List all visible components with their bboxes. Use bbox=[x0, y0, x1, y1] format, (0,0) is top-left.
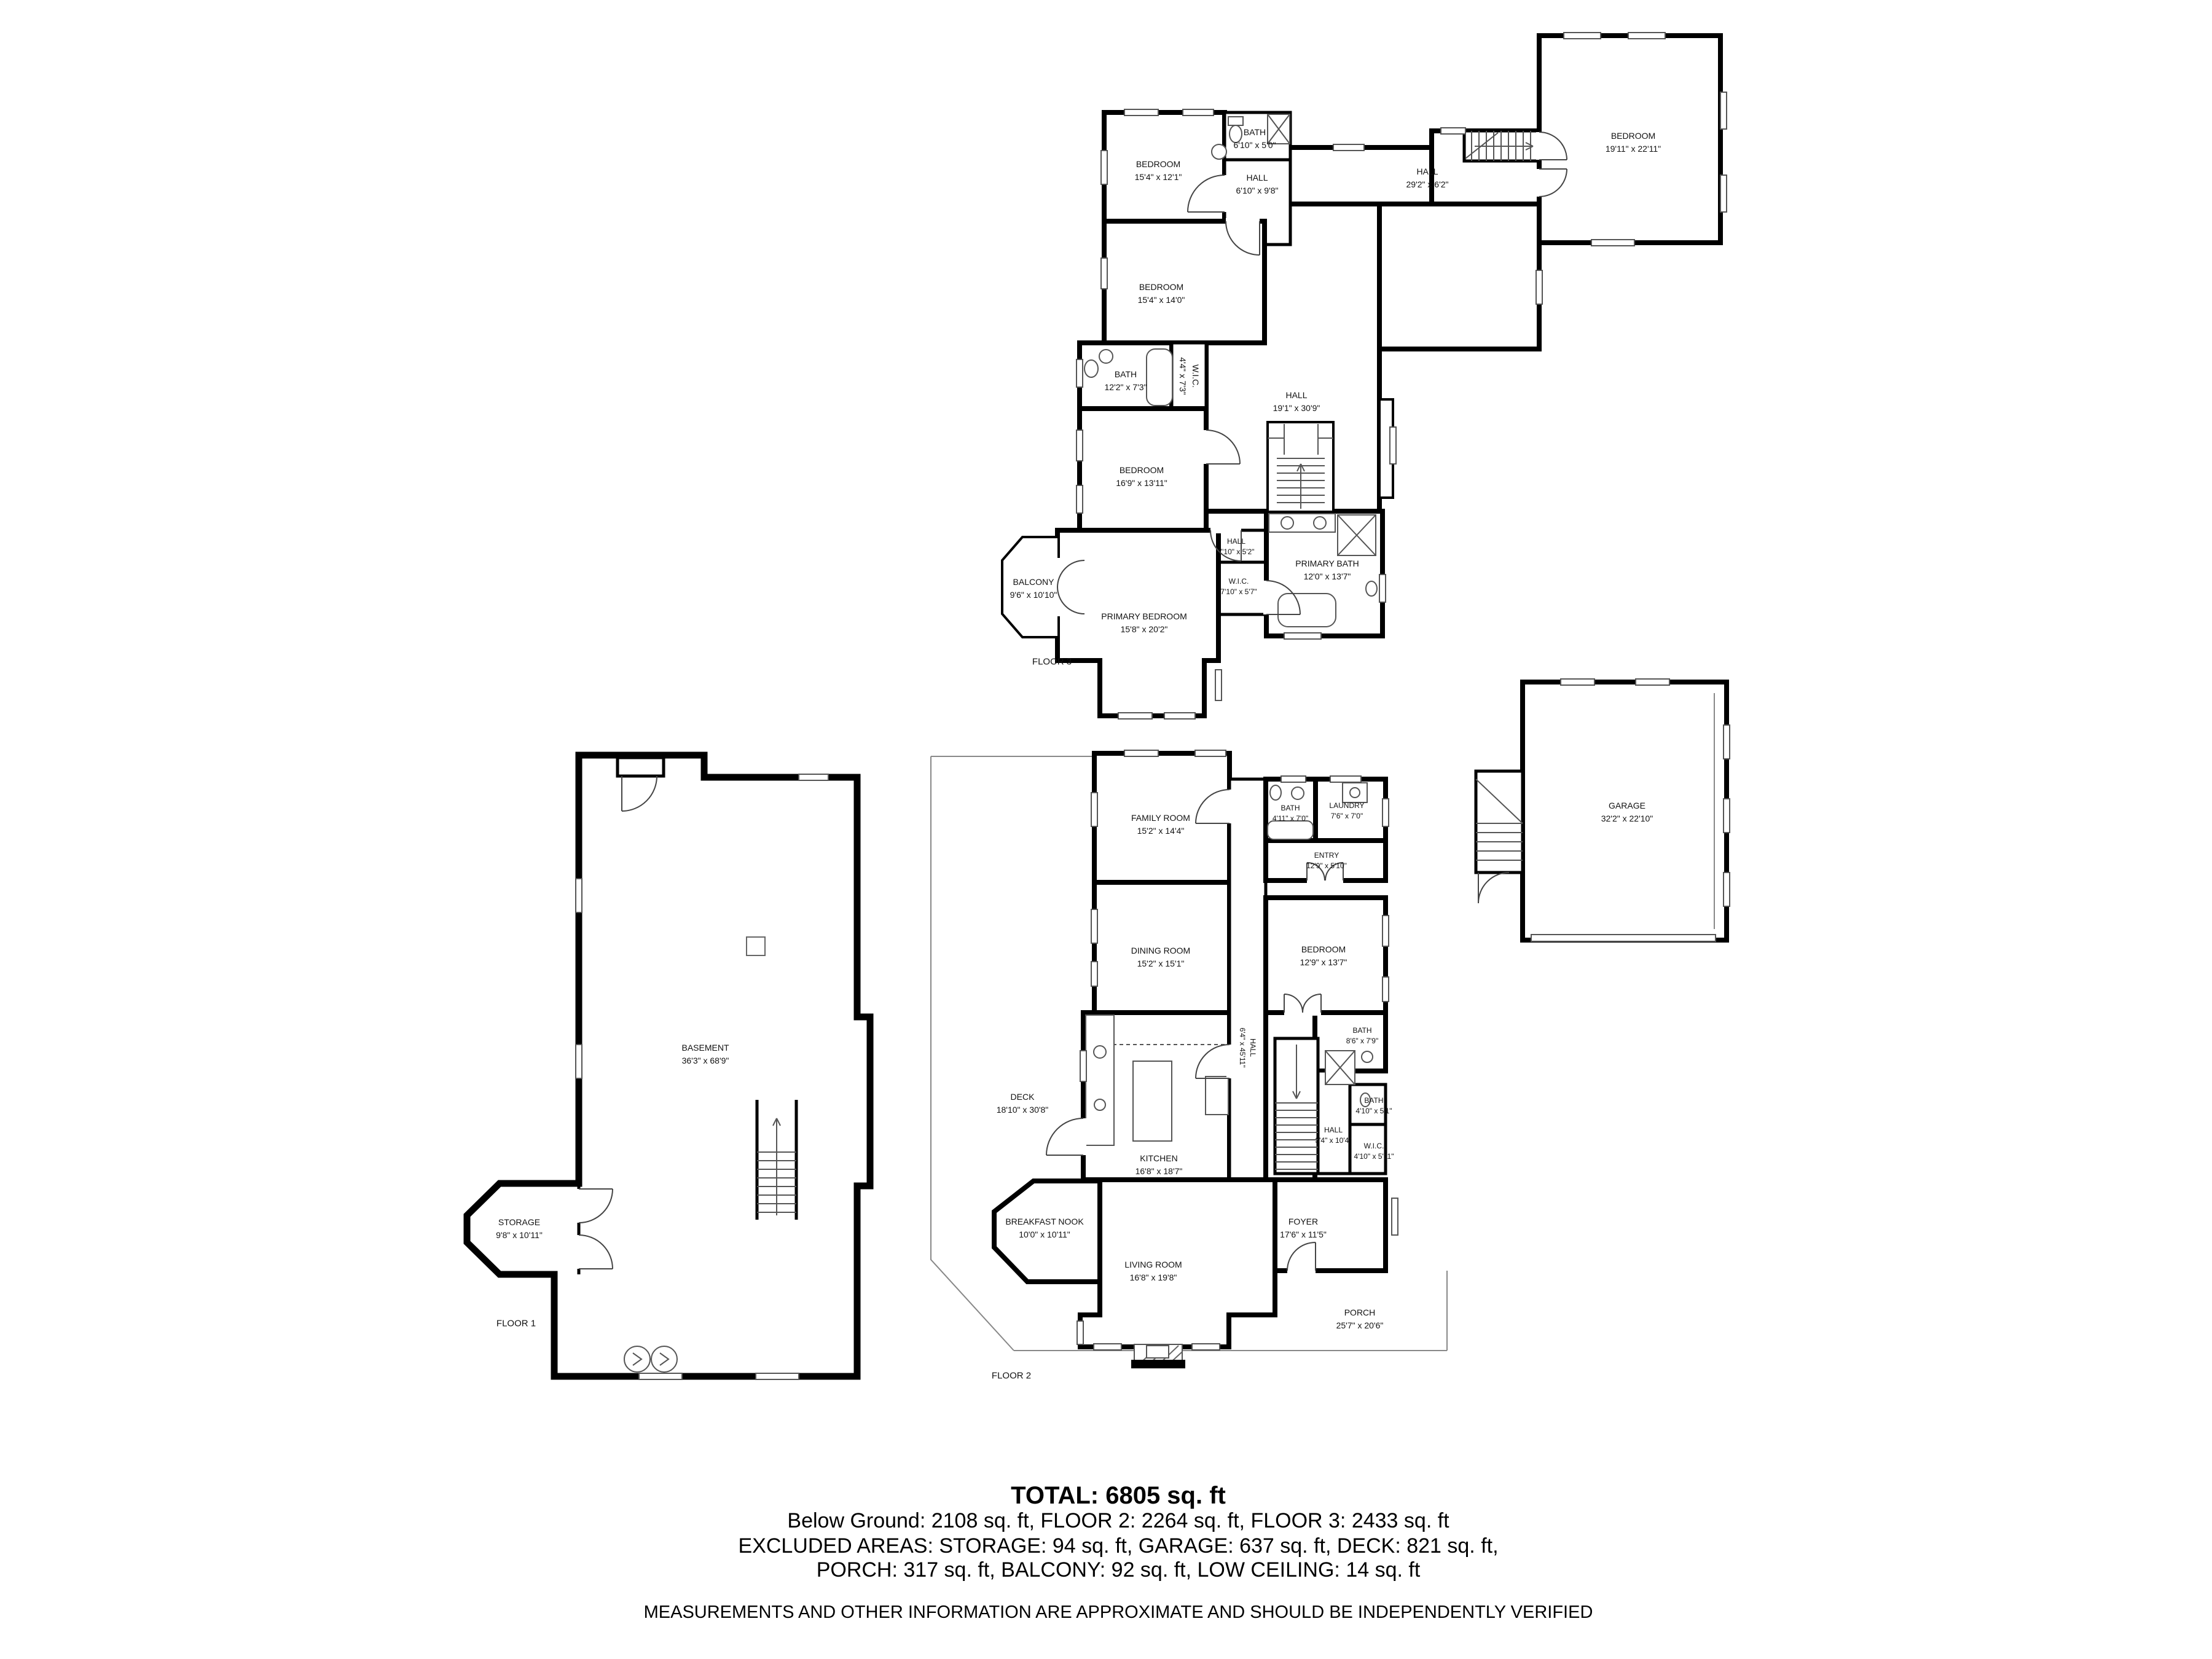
room-label-hall-long: HALL6'4" x 45'11" bbox=[1237, 1028, 1258, 1068]
floorplan-drawing bbox=[0, 0, 2212, 1659]
room-label-wic-f2: W.I.C.4'10" x 5'11" bbox=[1354, 1141, 1394, 1162]
room-label-bath-tiny: BATH4'10" x 5'1" bbox=[1355, 1096, 1392, 1116]
disclaimer-text: MEASUREMENTS AND OTHER INFORMATION ARE A… bbox=[644, 1602, 1593, 1623]
room-label-bedroom-right: BEDROOM19'11" x 22'11" bbox=[1606, 130, 1661, 155]
basement-outline bbox=[467, 755, 870, 1379]
room-label-bath-main: BATH8'6" x 7'9" bbox=[1346, 1026, 1378, 1046]
room-label-entry: ENTRY12'9" x 5'10" bbox=[1306, 850, 1347, 871]
room-label-hall-small-f3: HALL7'10" x 5'2" bbox=[1218, 536, 1254, 557]
room-label-bath-mid: BATH12'2" x 7'3" bbox=[1105, 368, 1147, 394]
room-label-wic-primary: W.I.C.7'10" x 5'7" bbox=[1220, 576, 1257, 597]
room-label-garage: GARAGE32'2" x 22'10" bbox=[1601, 799, 1653, 825]
room-label-breakfast: BREAKFAST NOOK10'0" x 10'11" bbox=[1005, 1215, 1083, 1241]
room-label-laundry: LAUNDRY7'6" x 7'0" bbox=[1329, 801, 1364, 822]
room-label-family: FAMILY ROOM15'2" x 14'4" bbox=[1131, 812, 1190, 837]
room-label-bedroom-mid: BEDROOM15'4" x 14'0" bbox=[1138, 281, 1185, 307]
room-label-foyer: FOYER17'6" x 11'5" bbox=[1280, 1215, 1327, 1241]
room-label-primary-bath: PRIMARY BATH12'0" x 13'7" bbox=[1295, 557, 1359, 583]
room-label-living: LIVING ROOM16'8" x 19'8" bbox=[1124, 1258, 1182, 1284]
floor3-label: FLOOR 3 bbox=[1032, 657, 1072, 667]
room-label-bedroom-tl: BEDROOM15'4" x 12'1" bbox=[1135, 158, 1182, 184]
room-label-hall-corridor: HALL29'2" x 6'2" bbox=[1406, 165, 1449, 191]
room-label-dining: DINING ROOM15'2" x 15'1" bbox=[1131, 944, 1190, 970]
total-area-text: TOTAL: 6805 sq. ft bbox=[1011, 1482, 1226, 1510]
floorplan-page: BEDROOM15'4" x 12'1" BATH6'10" x 5'0" HA… bbox=[0, 0, 2212, 1659]
room-label-primary-bedroom: PRIMARY BEDROOM15'8" x 20'2" bbox=[1101, 610, 1187, 636]
room-label-deck: DECK18'10" x 30'8" bbox=[997, 1091, 1049, 1116]
room-label-storage: STORAGE9'8" x 10'11" bbox=[496, 1216, 543, 1242]
room-label-bath-small: BATH4'11" x 7'0" bbox=[1273, 803, 1308, 824]
excluded-areas-text-1: EXCLUDED AREAS: STORAGE: 94 sq. ft, GARA… bbox=[738, 1534, 1498, 1558]
room-label-porch: PORCH25'7" x 20'6" bbox=[1336, 1306, 1384, 1332]
room-label-bath-top: BATH6'10" x 5'0" bbox=[1234, 126, 1276, 152]
floor1-label: FLOOR 1 bbox=[496, 1319, 536, 1329]
excluded-areas-text-2: PORCH: 317 sq. ft, BALCONY: 92 sq. ft, L… bbox=[817, 1558, 1421, 1582]
room-label-hall-small-f2: HALL3'4" x 10'4" bbox=[1315, 1125, 1351, 1146]
room-label-hall-main: HALL19'1" x 30'9" bbox=[1273, 389, 1320, 415]
room-label-wic-small: W.I.C.4'4" x 7'3" bbox=[1176, 357, 1202, 394]
floor2-walls bbox=[994, 750, 1398, 1368]
room-label-hall-top: HALL6'10" x 9'8" bbox=[1236, 171, 1279, 197]
room-label-basement: BASEMENT36'3" x 68'9" bbox=[681, 1041, 729, 1067]
room-label-bedroom-f2: BEDROOM12'9" x 13'7" bbox=[1300, 943, 1347, 969]
floor2-label: FLOOR 2 bbox=[992, 1371, 1031, 1381]
floor-areas-text: Below Ground: 2108 sq. ft, FLOOR 2: 2264… bbox=[787, 1509, 1449, 1533]
room-label-balcony: BALCONY9'6" x 10'10" bbox=[1010, 576, 1057, 602]
room-label-bedroom-low: BEDROOM16'9" x 13'11" bbox=[1116, 464, 1167, 490]
room-label-kitchen: KITCHEN16'8" x 18'7" bbox=[1135, 1152, 1183, 1178]
